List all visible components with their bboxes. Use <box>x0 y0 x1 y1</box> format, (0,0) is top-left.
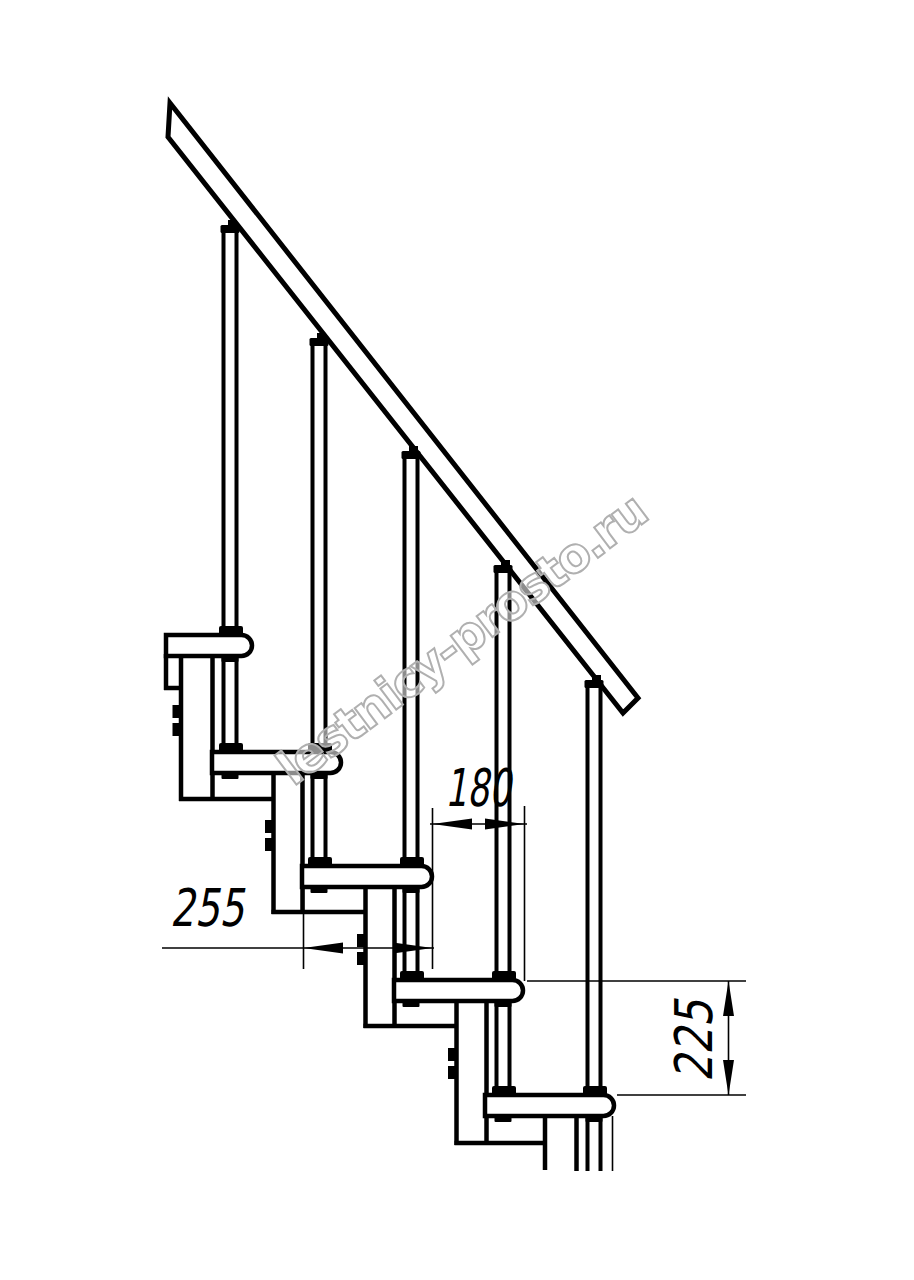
dimension-label-255: 255 <box>170 878 246 938</box>
baluster-4 <box>497 568 510 1095</box>
tread-5 <box>485 1095 614 1116</box>
baluster-1 <box>224 228 237 752</box>
baluster-2 <box>313 341 326 866</box>
tread-4 <box>394 980 523 1001</box>
staircase-drawing-page: 180 255 225 lestnicy-prosto.ru <box>0 0 914 1280</box>
tread-3 <box>302 866 432 887</box>
tread-1 <box>166 635 252 656</box>
dimension-label-225: 225 <box>664 998 724 1082</box>
baluster-3 <box>405 454 418 980</box>
modular-staircase-side-view: 180 255 225 lestnicy-prosto.ru <box>0 0 914 1280</box>
dimension-label-180: 180 <box>445 758 514 818</box>
